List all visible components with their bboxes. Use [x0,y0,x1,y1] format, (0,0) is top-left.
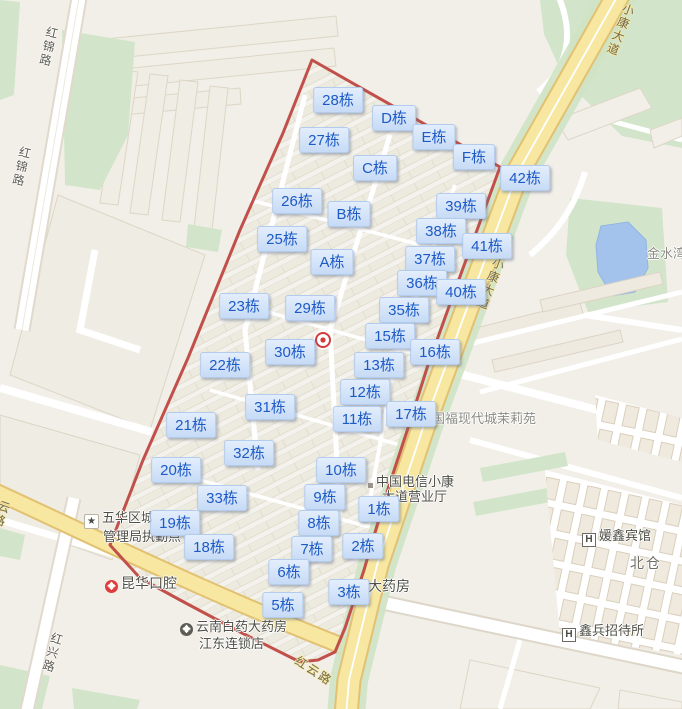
poi-kunhua[interactable]: +昆华口腔 [105,576,177,593]
building-label[interactable]: 20栋 [151,457,201,483]
building-label[interactable]: 31栋 [245,394,295,420]
building-label[interactable]: 30栋 [265,339,315,365]
building-label[interactable]: 15栋 [365,323,415,349]
building-label[interactable]: 23栋 [219,293,269,319]
area-guofu: 国福现代城茉莉苑 [432,411,536,426]
building-label[interactable]: 28栋 [313,87,363,113]
building-label[interactable]: 8栋 [298,510,339,536]
poi-yuanxin[interactable]: H媛鑫宾馆 [582,528,651,547]
red-cross-icon: + [105,580,118,593]
poi-telecom-line1: 中国电信小康 [376,474,454,489]
poi-xinbing-text: 鑫兵招待所 [579,623,644,638]
building-label[interactable]: 27栋 [299,127,349,153]
poi-yuanxin-text: 媛鑫宾馆 [599,528,651,543]
building-label[interactable]: A栋 [310,249,353,275]
poi-baiyao-line1: 云南白药大药房 [196,619,287,634]
building-label[interactable]: F栋 [453,144,495,170]
building-label[interactable]: 2栋 [342,533,383,559]
building-label[interactable]: 16栋 [410,339,460,365]
poi-dot-icon [368,483,373,488]
poi-kunhua-text: 昆华口腔 [121,575,177,591]
building-label[interactable]: 32栋 [224,440,274,466]
building-label[interactable]: 35栋 [379,297,429,323]
building-label[interactable]: 22栋 [200,352,250,378]
building-label[interactable]: 41栋 [462,233,512,259]
building-label[interactable]: 26栋 [272,188,322,214]
building-label[interactable]: C栋 [353,155,397,181]
poi-pharmacy-text: 大药房 [368,578,410,594]
building-label[interactable]: 42栋 [500,165,550,191]
poi-xinbing[interactable]: H鑫兵招待所 [562,623,644,642]
pharmacy-cross-icon: + [180,623,193,636]
poi-chengguan-line1: 五华区城 [102,510,154,525]
building-label[interactable]: 21栋 [166,412,216,438]
building-label[interactable]: 12栋 [340,379,390,405]
building-label[interactable]: 17栋 [386,401,436,427]
building-label[interactable]: 39栋 [436,193,486,219]
building-label[interactable]: 5栋 [262,592,303,618]
building-label[interactable]: 1栋 [358,496,399,522]
building-labels-layer: 28栋D栋27栋E栋F栋C栋42栋26栋39栋B栋38栋25栋41栋A栋37栋3… [0,0,682,709]
building-label[interactable]: 19栋 [150,510,200,536]
building-label[interactable]: 29栋 [285,295,335,321]
poi-baiyao-line2: 江东连锁店 [199,636,264,651]
building-label[interactable]: 11栋 [333,406,382,432]
building-label[interactable]: 9栋 [304,484,345,510]
building-label[interactable]: 3栋 [328,579,369,605]
area-beicang: 北仓 [630,556,662,571]
building-label[interactable]: 18栋 [184,534,234,560]
building-label[interactable]: D栋 [372,105,416,131]
hotel-h-icon: H [582,533,596,547]
building-label[interactable]: 38栋 [416,218,466,244]
building-label[interactable]: 25栋 [257,226,307,252]
building-label[interactable]: 33栋 [197,485,247,511]
building-label[interactable]: B栋 [327,201,370,227]
building-label[interactable]: 37栋 [405,246,455,272]
building-label[interactable]: 10栋 [316,457,366,483]
poi-pharmacy[interactable]: 大药房 [368,579,410,594]
building-label[interactable]: 40栋 [436,279,486,305]
map-canvas[interactable]: ★五华区城 管理局执勤点 +昆华口腔 +云南白药大药房 江东连锁店 大药房 中国… [0,0,682,709]
poi-baiyao[interactable]: +云南白药大药房 江东连锁店 [180,619,287,651]
building-label[interactable]: 6栋 [268,559,309,585]
building-label[interactable]: 13栋 [354,352,404,378]
hotel-h-icon: H [562,628,576,642]
star-badge-icon: ★ [84,514,99,529]
building-label[interactable]: E栋 [412,124,455,150]
area-jinshuiwan: 金水湾 [647,246,682,261]
